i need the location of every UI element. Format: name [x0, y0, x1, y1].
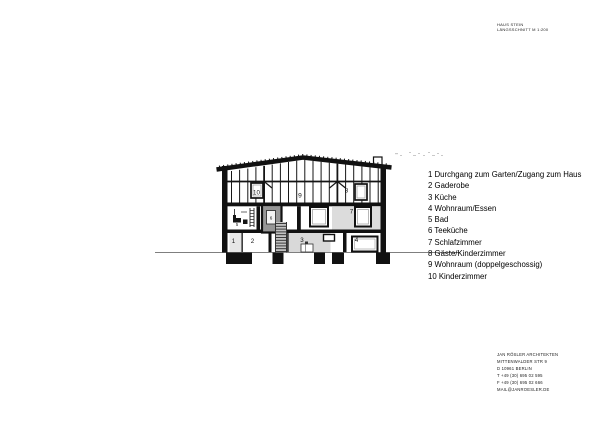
room10-label: 10	[253, 190, 260, 197]
phone: T +49 (30) 695 02 595	[497, 373, 558, 380]
room3-label: 3	[300, 237, 304, 244]
contact-block: JAN RÖSLER ARCHITEKTEN MITTENWALDER STR …	[497, 352, 558, 393]
faint-scale-marks	[395, 152, 443, 156]
legend-item-7: 7 Schlafzimmer	[428, 237, 581, 248]
ladder	[250, 208, 254, 227]
legend-item-10: 10 Kinderzimmer	[428, 271, 581, 282]
room5-label: 5	[236, 222, 239, 227]
room9-label: 9	[298, 193, 302, 200]
high-window	[324, 235, 335, 242]
wall-room1-2	[242, 233, 243, 252]
room7-window	[355, 207, 371, 227]
foundation-footings	[226, 253, 390, 265]
room1-label: 1	[232, 238, 236, 245]
room-legend: 1 Durchgang zum Garten/Zugang zum Haus 2…	[428, 169, 581, 282]
attic-window-room8	[355, 184, 367, 200]
room4-label: 4	[355, 237, 359, 244]
legend-item-8: 8 Gäste/Kinderzimmer	[428, 248, 581, 259]
city: D 10961 BERLIN	[497, 366, 558, 373]
wall-stair-room3	[287, 233, 288, 252]
middle-wall-left	[257, 206, 261, 229]
legend-item-1: 1 Durchgang zum Garten/Zugang zum Haus	[428, 169, 581, 180]
middle-window-center	[310, 207, 328, 227]
legend-item-9: 9 Wohnraum (doppelgeschossig)	[428, 259, 581, 270]
legend-item-3: 3 Küche	[428, 192, 581, 203]
architect-name: JAN RÖSLER ARCHITEKTEN	[497, 352, 558, 359]
room2-label: 2	[251, 238, 255, 245]
room7-label: 7	[350, 209, 354, 216]
attic-floor-slab	[227, 203, 381, 207]
legend-item-4: 4 Wohnraum/Essen	[428, 203, 581, 214]
wall-room3-4	[343, 233, 347, 252]
email: MAIL@JANROESLER.DE	[497, 387, 558, 394]
fax: F +49 (30) 695 02 666	[497, 380, 558, 387]
exterior-wall-right	[381, 165, 387, 253]
roof	[217, 155, 392, 170]
legend-item-2: 2 Gaderobe	[428, 180, 581, 191]
drawing-sheet: HAUS STEIN LÄNGSSCHNITT M 1:200	[0, 0, 600, 423]
room6-label: 6	[270, 216, 273, 221]
staircase	[276, 222, 287, 252]
wall-room2-stair	[269, 233, 272, 252]
exterior-wall-left	[222, 166, 228, 253]
middle-wall-center	[297, 206, 301, 229]
ground-floor-slab	[227, 230, 381, 234]
legend-item-5: 5 Bad	[428, 214, 581, 225]
room8-label: 8	[345, 188, 349, 195]
legend-item-6: 6 Teeküche	[428, 225, 581, 236]
street: MITTENWALDER STR 9	[497, 359, 558, 366]
